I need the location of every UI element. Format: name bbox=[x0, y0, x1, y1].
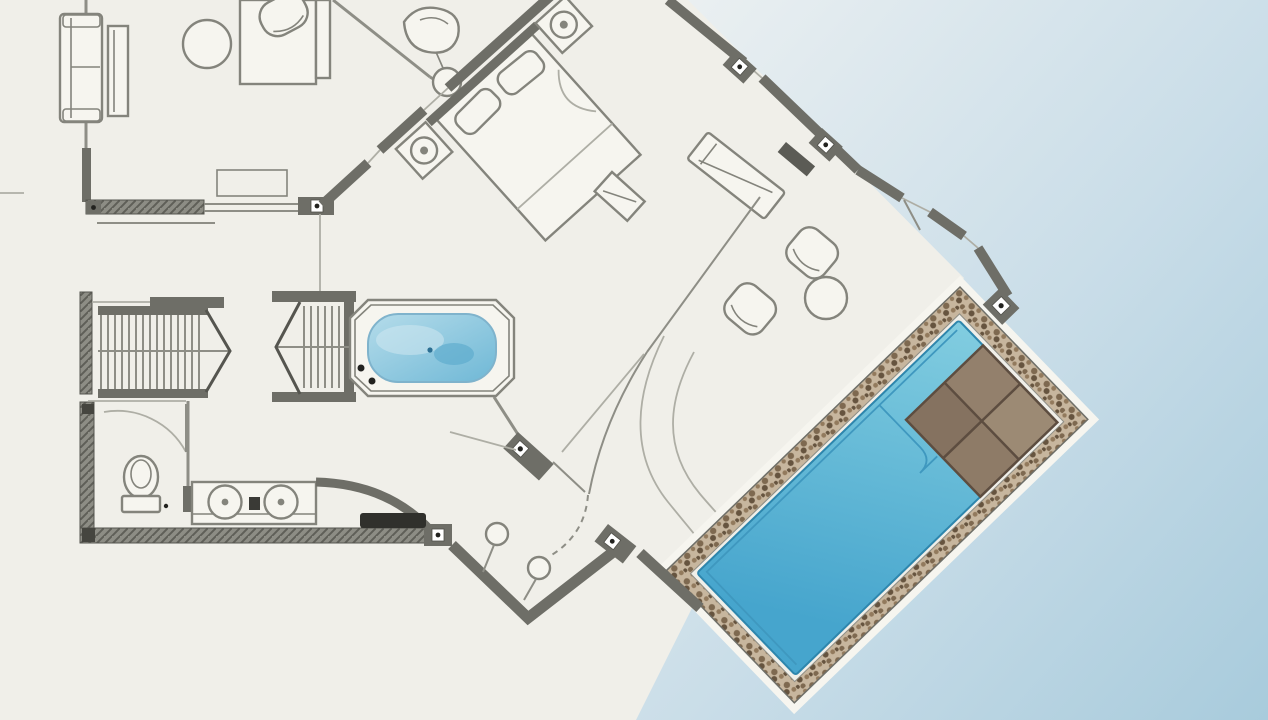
tv-console bbox=[108, 26, 128, 116]
tub-drain bbox=[427, 347, 432, 352]
tub-faucet bbox=[369, 378, 376, 385]
sofa bbox=[60, 14, 102, 122]
west-wall-hatched bbox=[80, 292, 92, 394]
tub-water-highlight bbox=[376, 325, 444, 355]
wardrobe-left bbox=[98, 306, 230, 398]
west-wall-hatched bbox=[80, 402, 94, 534]
south-wall-hatched bbox=[86, 200, 204, 214]
tub-water-shadow bbox=[434, 343, 474, 365]
wall-post-small bbox=[82, 528, 95, 542]
vanity bbox=[192, 482, 316, 524]
round-table bbox=[183, 20, 231, 68]
floor-plan-svg bbox=[0, 0, 1268, 720]
south-wall-hatched bbox=[80, 528, 436, 543]
side-table bbox=[805, 277, 847, 319]
wall-post bbox=[86, 201, 101, 214]
tub-faucet bbox=[358, 365, 365, 372]
wall-post-small bbox=[82, 404, 94, 414]
bathtub bbox=[350, 300, 514, 396]
vanity-accessory bbox=[249, 497, 260, 510]
west-wall-dark-segment bbox=[82, 148, 91, 202]
floor-plan-page bbox=[0, 0, 1268, 720]
door-mat bbox=[360, 513, 426, 528]
